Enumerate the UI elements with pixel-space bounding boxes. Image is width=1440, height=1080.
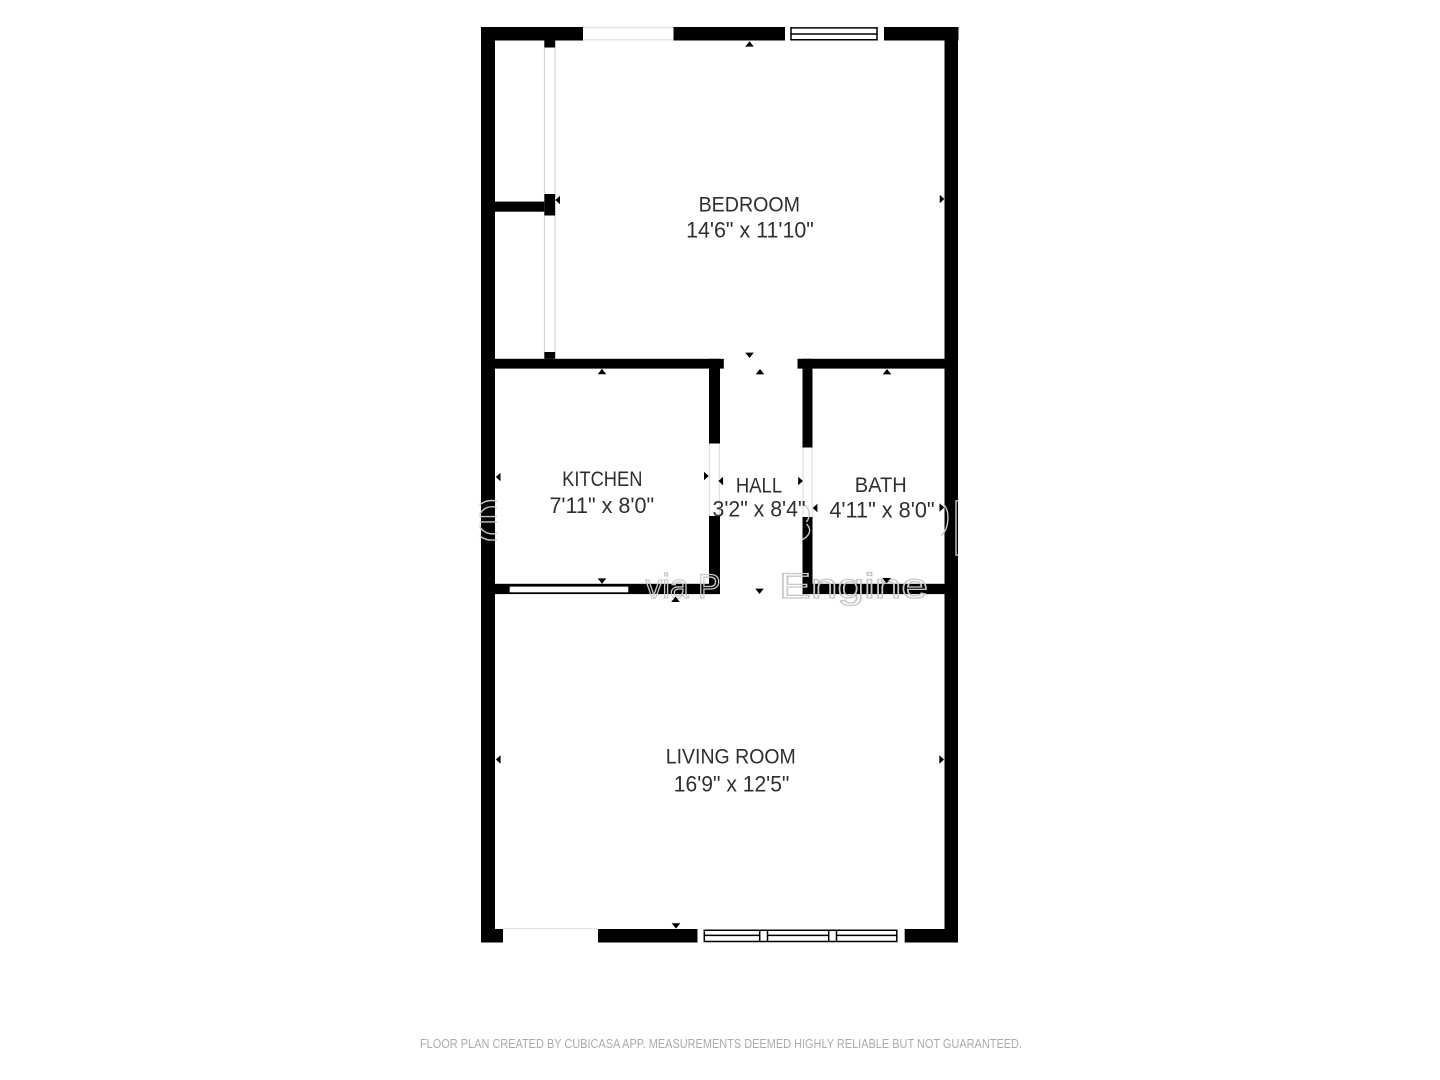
svg-text:3'2" x 8'4": 3'2" x 8'4" [713, 496, 806, 521]
svg-text:BATH: BATH [855, 474, 907, 497]
svg-text:FLOOR PLAN CREATED BY CUBICASA: FLOOR PLAN CREATED BY CUBICASA APP. MEAS… [420, 1036, 1022, 1051]
svg-text:HALL: HALL [736, 475, 782, 498]
svg-text:16'9" x 12'5": 16'9" x 12'5" [674, 771, 790, 796]
svg-text:via P: via P [646, 568, 721, 606]
svg-text:14'6" x 11'10": 14'6" x 11'10" [686, 218, 814, 243]
svg-text:LIVING ROOM: LIVING ROOM [666, 745, 796, 768]
svg-text:Engine: Engine [779, 567, 928, 606]
svg-text:BEDROOM: BEDROOM [699, 194, 800, 217]
svg-text:4'11" x 8'0": 4'11" x 8'0" [829, 498, 934, 523]
svg-text:7'11" x 8'0": 7'11" x 8'0" [549, 493, 654, 518]
svg-text:KITCHEN: KITCHEN [562, 468, 642, 491]
